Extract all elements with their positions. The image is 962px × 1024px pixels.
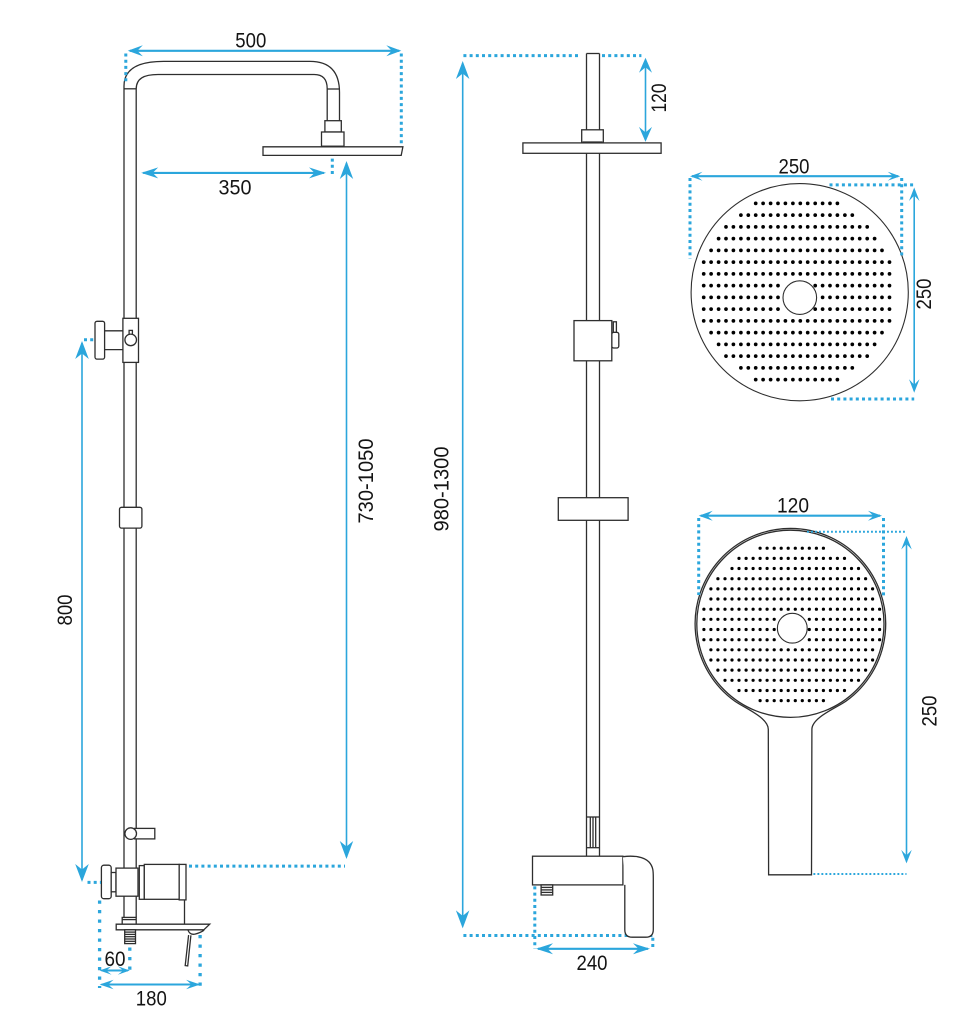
svg-text:730-1050: 730-1050 — [355, 439, 378, 524]
svg-text:120: 120 — [648, 84, 671, 113]
svg-text:800: 800 — [54, 595, 77, 626]
svg-text:980-1300: 980-1300 — [431, 447, 454, 532]
svg-text:180: 180 — [136, 987, 167, 1010]
svg-text:240: 240 — [577, 952, 608, 975]
svg-text:250: 250 — [913, 279, 936, 310]
svg-text:60: 60 — [105, 948, 126, 971]
svg-text:500: 500 — [235, 30, 266, 53]
svg-text:250: 250 — [779, 156, 810, 179]
svg-text:350: 350 — [219, 177, 252, 200]
svg-text:250: 250 — [919, 696, 942, 727]
svg-text:120: 120 — [777, 495, 809, 518]
